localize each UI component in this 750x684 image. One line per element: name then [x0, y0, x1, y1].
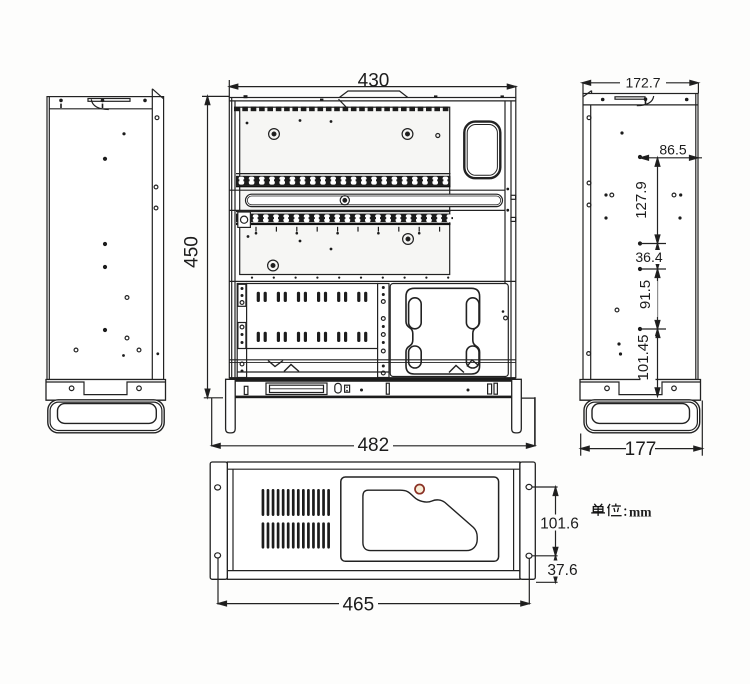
- svg-text:177: 177: [625, 439, 657, 460]
- svg-text:101.6: 101.6: [540, 516, 579, 533]
- svg-text:36.4: 36.4: [635, 249, 662, 265]
- svg-text:430: 430: [358, 71, 390, 92]
- svg-text:91.5: 91.5: [637, 280, 654, 309]
- svg-text:mm: mm: [629, 505, 652, 520]
- svg-text:86.5: 86.5: [659, 142, 686, 158]
- svg-text:450: 450: [182, 236, 203, 268]
- svg-text:482: 482: [357, 435, 389, 456]
- svg-text:127.9: 127.9: [633, 181, 650, 219]
- svg-text:465: 465: [342, 595, 374, 616]
- svg-text:37.6: 37.6: [547, 562, 577, 579]
- svg-text:101.45: 101.45: [635, 335, 652, 381]
- svg-text:172.7: 172.7: [625, 75, 660, 91]
